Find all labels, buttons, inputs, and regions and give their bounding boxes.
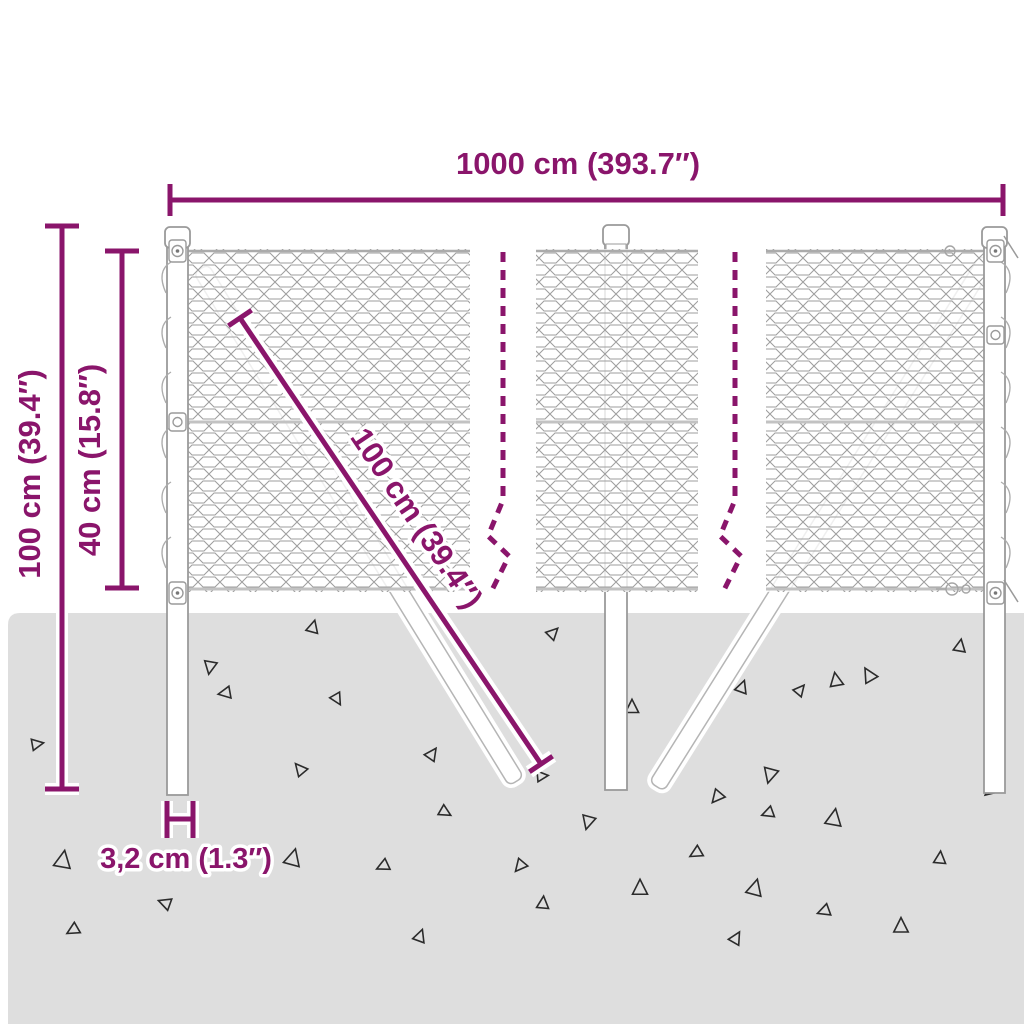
dimension-height-offset-label: 40 cm (15.8″)	[72, 364, 107, 556]
dimension-width-label: 1000 cm (393.7″)	[456, 146, 700, 181]
fence-mesh-panel-3	[766, 249, 986, 592]
ground	[8, 613, 1024, 1024]
fence-post-left	[162, 227, 190, 795]
fence-dimension-diagram: 1000 cm (393.7″) 100 cm (39.4″) 40 cm (1…	[0, 0, 1024, 1024]
fence-mesh-panel-2	[536, 249, 698, 592]
diagram-canvas: 1000 cm (393.7″) 100 cm (39.4″) 40 cm (1…	[0, 0, 1024, 1024]
dimension-height-total-label: 100 cm (39.4″)	[12, 369, 47, 579]
dimension-post-thickness-label: 3,2 cm (1.3″)	[100, 843, 272, 875]
